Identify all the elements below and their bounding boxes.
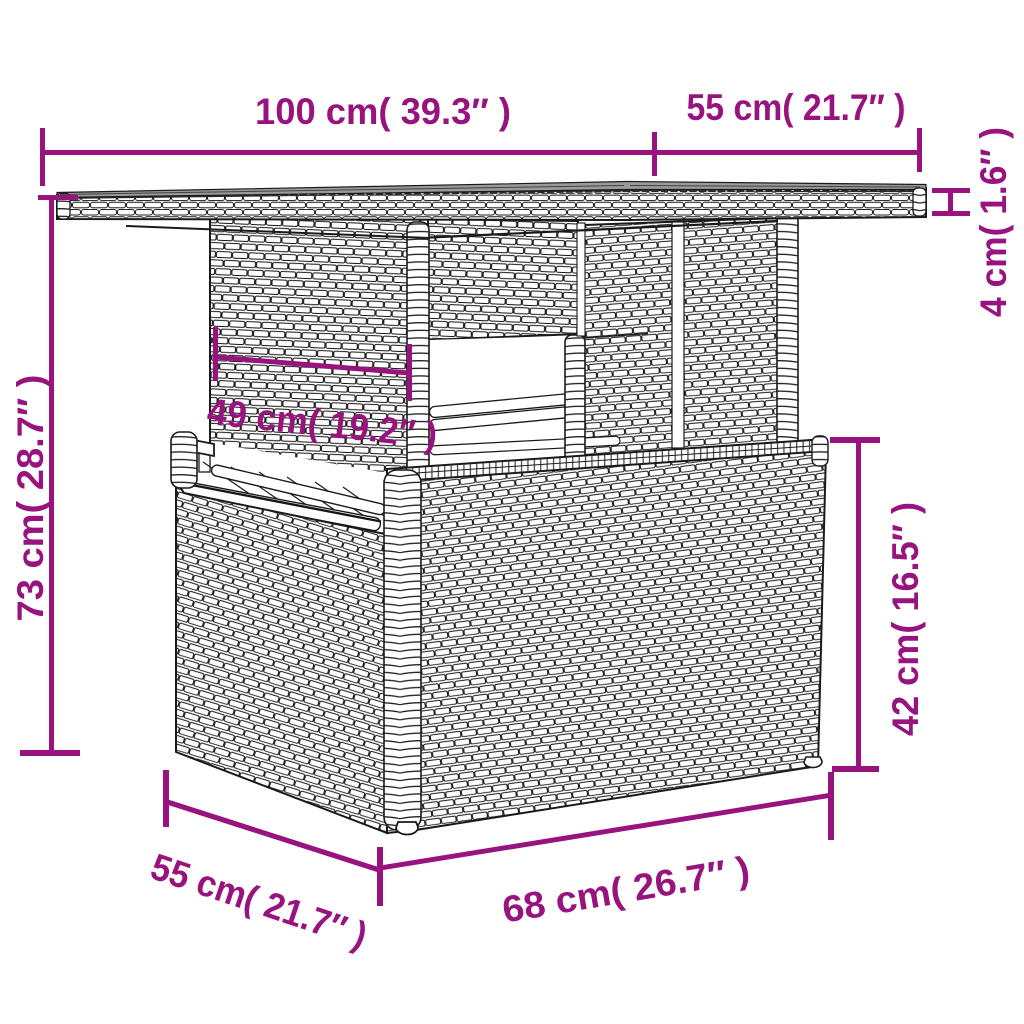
svg-text:55 cm( 21.7″ ): 55 cm( 21.7″ ) — [687, 86, 906, 128]
svg-text:42 cm( 16.5″ ): 42 cm( 16.5″ ) — [884, 502, 926, 736]
svg-text:4 cm( 1.6″ ): 4 cm( 1.6″ ) — [972, 127, 1014, 317]
svg-text:100 cm( 39.3″ ): 100 cm( 39.3″ ) — [255, 90, 511, 132]
svg-text:73 cm( 28.7″ ): 73 cm( 28.7″ ) — [9, 375, 51, 622]
